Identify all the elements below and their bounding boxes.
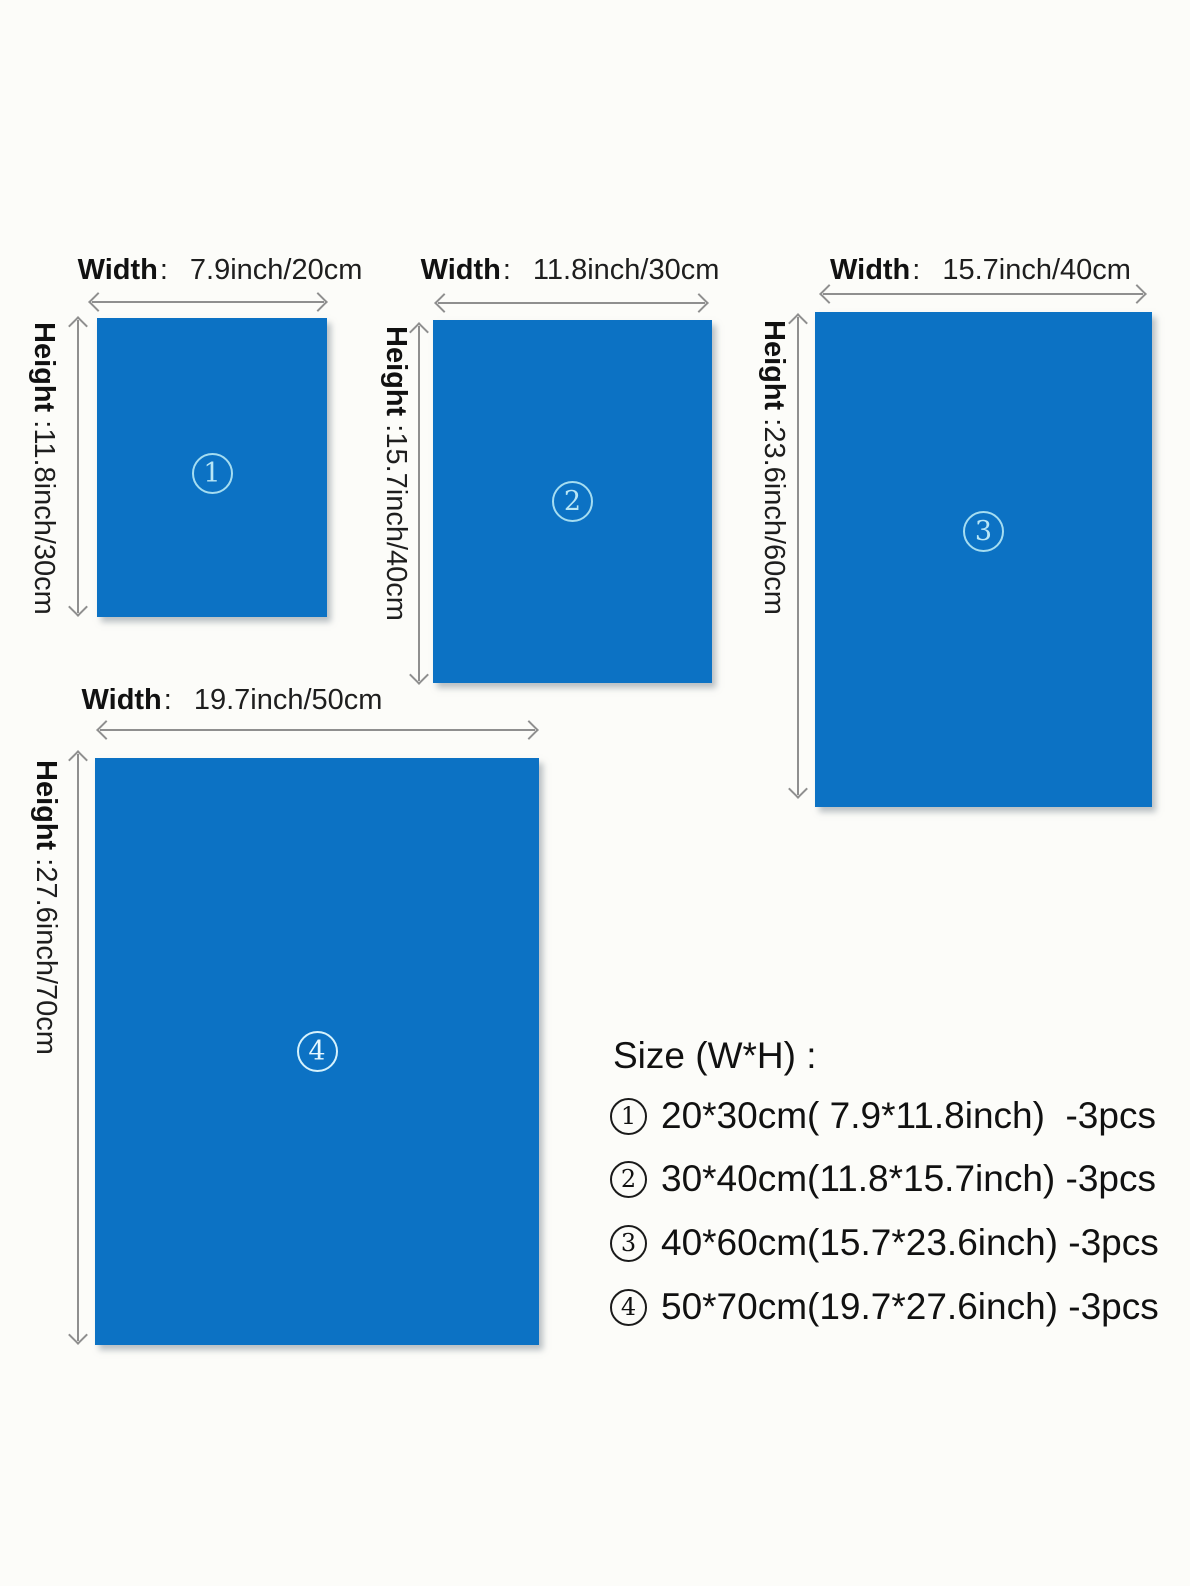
legend-number: 4 <box>621 1295 636 1319</box>
legend-number: 1 <box>621 1104 636 1128</box>
height-colon: : <box>758 410 790 426</box>
width-word: Width <box>82 684 162 716</box>
width-word: Width <box>830 254 910 286</box>
height-colon: : <box>30 850 62 866</box>
legend-item-text: 30*40cm(11.8*15.7inch) -3pcs <box>661 1158 1156 1200</box>
height-dimension-arrow-1 <box>77 320 79 613</box>
circled-number-2: 2 <box>552 481 593 522</box>
poster-swatch-2: 2 <box>433 320 712 683</box>
size-legend-item-3: 3 40*60cm(15.7*23.6inch) -3pcs <box>610 1221 1159 1265</box>
width-dimension-arrow-3 <box>823 293 1143 295</box>
legend-circled-number-1: 1 <box>610 1098 647 1135</box>
circled-number-4: 4 <box>297 1031 338 1072</box>
poster-swatch-1: 1 <box>97 318 327 617</box>
width-word: Width <box>78 254 158 286</box>
height-value: 15.7inch/40cm <box>380 432 412 621</box>
size-legend-title: Size (W*H) : <box>613 1035 817 1077</box>
height-dimension-label-2: Height :15.7inch/40cm <box>380 326 412 621</box>
height-word: Height <box>380 326 412 416</box>
poster-size-diagram: Width:7.9inch/20cm Height :11.8inch/30cm… <box>0 0 1190 1586</box>
width-value: 11.8inch/30cm <box>533 254 719 286</box>
width-colon: : <box>912 254 920 286</box>
height-value: 11.8inch/30cm <box>28 428 60 614</box>
legend-number: 3 <box>621 1231 636 1255</box>
width-value: 19.7inch/50cm <box>194 684 383 716</box>
circled-number-1: 1 <box>192 453 233 494</box>
size-legend-item-2: 2 30*40cm(11.8*15.7inch) -3pcs <box>610 1157 1156 1201</box>
size-legend-item-1: 1 20*30cm( 7.9*11.8inch) -3pcs <box>610 1094 1156 1138</box>
height-colon: : <box>380 416 412 432</box>
width-colon: : <box>503 254 511 286</box>
width-value: 7.9inch/20cm <box>190 254 363 286</box>
height-word: Height <box>28 322 60 412</box>
height-dimension-label-4: Height :27.6inch/70cm <box>30 760 62 1055</box>
legend-circled-number-2: 2 <box>610 1161 647 1198</box>
swatch-number: 2 <box>564 488 581 515</box>
height-dimension-arrow-4 <box>77 754 79 1341</box>
poster-swatch-4: 4 <box>95 758 539 1345</box>
swatch-number: 3 <box>975 518 992 545</box>
swatch-number: 4 <box>308 1038 325 1065</box>
width-dimension-label-2: Width:11.8inch/30cm <box>420 254 720 286</box>
width-dimension-label-1: Width:7.9inch/20cm <box>70 254 370 286</box>
size-legend-item-4: 4 50*70cm(19.7*27.6inch) -3pcs <box>610 1285 1159 1329</box>
height-dimension-arrow-2 <box>418 326 420 681</box>
width-dimension-arrow-1 <box>92 301 324 303</box>
width-colon: : <box>160 254 168 286</box>
swatch-number: 1 <box>203 460 220 487</box>
legend-circled-number-3: 3 <box>610 1225 647 1262</box>
width-dimension-arrow-4 <box>100 729 535 731</box>
height-dimension-label-3: Height :23.6inch/60cm <box>758 320 790 615</box>
height-word: Height <box>30 760 62 850</box>
poster-swatch-3: 3 <box>815 312 1152 807</box>
width-word: Width <box>421 254 501 286</box>
height-value: 23.6inch/60cm <box>758 426 790 615</box>
height-value: 27.6inch/70cm <box>30 866 62 1055</box>
height-word: Height <box>758 320 790 410</box>
height-colon: : <box>28 412 60 428</box>
legend-item-text: 40*60cm(15.7*23.6inch) -3pcs <box>661 1222 1159 1264</box>
legend-circled-number-4: 4 <box>610 1289 647 1326</box>
legend-item-text: 20*30cm( 7.9*11.8inch) -3pcs <box>661 1095 1156 1137</box>
legend-number: 2 <box>621 1167 636 1191</box>
circled-number-3: 3 <box>963 511 1004 552</box>
width-colon: : <box>164 684 172 716</box>
width-dimension-label-3: Width:15.7inch/40cm <box>808 254 1153 286</box>
width-dimension-label-4: Width:19.7inch/50cm <box>72 684 392 716</box>
width-value: 15.7inch/40cm <box>942 254 1131 286</box>
height-dimension-arrow-3 <box>797 317 799 795</box>
width-dimension-arrow-2 <box>438 302 705 304</box>
height-dimension-label-1: Height :11.8inch/30cm <box>28 322 60 615</box>
legend-item-text: 50*70cm(19.7*27.6inch) -3pcs <box>661 1286 1159 1328</box>
